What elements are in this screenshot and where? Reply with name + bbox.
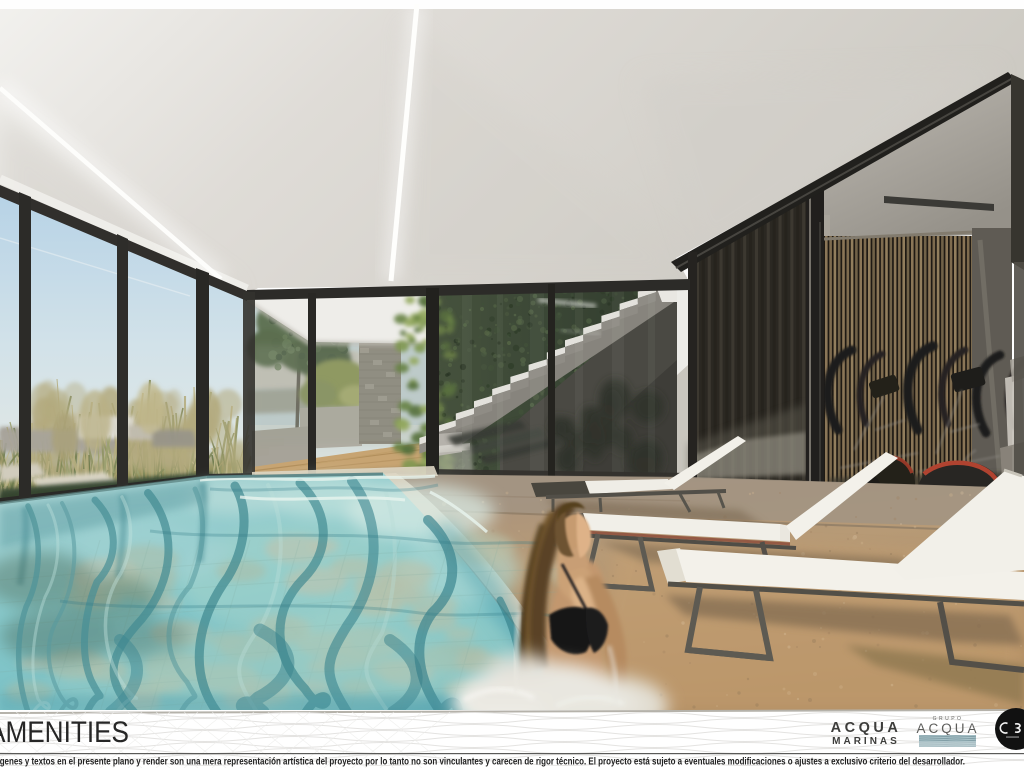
svg-text:ACQUA: ACQUA [831,720,902,736]
svg-text:MARINAS: MARINAS [832,736,900,747]
svg-text:imágenes y textos en el presen: imágenes y textos en el presente plano y… [0,756,965,768]
svg-text:ACQUA: ACQUA [916,721,979,736]
svg-text:AMENITIES: AMENITIES [0,716,129,749]
